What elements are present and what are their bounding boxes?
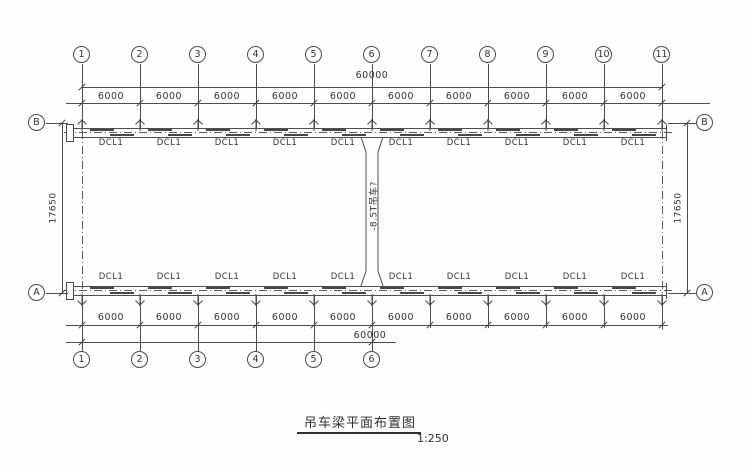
rail-dash [226,134,250,136]
column-support-icon [192,117,204,131]
rail-dash [612,129,636,131]
rail-dash [90,287,114,289]
row-connector [668,123,696,124]
dim-label-bay-bottom: 6000 [98,313,124,323]
beam-segment-label: DCL1 [99,139,124,148]
rail-dash [458,134,482,136]
grid-bubble-top: 1 [73,46,90,63]
row-bubble-a-right: A [696,284,713,301]
rail-dash [284,134,308,136]
rail-dash [554,129,578,131]
rail-dash [554,287,578,289]
rail-dash [496,129,520,131]
beam-segment-label: DCL1 [621,273,646,282]
rail-dash [110,134,134,136]
column-support-icon [598,117,610,131]
beam-segment-label: DCL1 [563,273,588,282]
grid-bubble-bottom: 4 [247,351,264,368]
beam-segment-label: DCL1 [215,139,240,148]
grid-bubble-top: 3 [189,46,206,63]
grid-bubble-top: 8 [479,46,496,63]
dim-line-height-left [62,123,63,293]
dim-label-bay-bottom: 6000 [504,313,530,323]
column-support-icon [308,117,320,131]
rail-dash [168,134,192,136]
dim-label-bay-bottom: 6000 [272,313,298,323]
grid-bubble-bottom: 2 [131,351,148,368]
dim-line-bays-bottom [66,325,668,326]
beam-segment-label: DCL1 [331,273,356,282]
beam-end-block [66,282,74,300]
beam-segment-label: DCL1 [389,139,414,148]
rail-dash [438,129,462,131]
beam-segment-label: DCL1 [505,273,530,282]
dim-label-bay-top: 6000 [562,92,588,102]
row-bubble-b-left: B [28,114,45,131]
beam-segment-label: DCL1 [215,273,240,282]
beam-segment-label: DCL1 [563,139,588,148]
rail-dash [574,292,598,294]
dim-line-total-bottom [66,342,396,343]
beam-segment-label: DCL1 [331,139,356,148]
column-support-icon [656,117,668,131]
dim-label-bay-top: 6000 [156,92,182,102]
drawing-canvas: 1234567891011600006000600060006000600060… [0,0,750,469]
column-support-icon [250,117,262,131]
dim-label-bay-top: 6000 [504,92,530,102]
rail-dash [574,134,598,136]
rail-dash [110,292,134,294]
dim-label-bay-bottom: 6000 [620,313,646,323]
grid-bubble-top: 5 [305,46,322,63]
rail-dash [612,287,636,289]
dim-label-bay-top: 6000 [388,92,414,102]
rail-dash [322,129,346,131]
center-column-note: -8.5T吊车? [371,181,380,231]
rail-dash [632,292,656,294]
beam-segment-label: DCL1 [447,273,472,282]
dim-label-bay-top: 6000 [272,92,298,102]
column-support-icon [134,117,146,131]
rail-dash [400,134,424,136]
dim-label-bay-top: 6000 [98,92,124,102]
rail-dash [264,287,288,289]
beam-segment-label: DCL1 [389,273,414,282]
grid-bubble-bottom: 6 [363,351,380,368]
rail-dash [264,129,288,131]
row-connector [46,123,68,124]
row-connector [46,293,68,294]
dim-label-bay-bottom: 6000 [562,313,588,323]
beam-segment-label: DCL1 [505,139,530,148]
column-support-icon [540,117,552,131]
row-bubble-a-left: A [28,284,45,301]
dim-label-bay-bottom: 6000 [330,313,356,323]
title-underline [297,432,421,434]
grid-bubble-top: 4 [247,46,264,63]
grid-bubble-top: 2 [131,46,148,63]
dim-label-height-right: 17650 [675,192,684,223]
row-bubble-b-right: B [696,114,713,131]
rail-dash [458,292,482,294]
rail-dash [438,287,462,289]
rail-dash [496,287,520,289]
column-support-icon [482,117,494,131]
beam-segment-label: DCL1 [157,273,182,282]
drawing-scale: 1:250 [417,433,449,444]
grid-bubble-top: 11 [653,46,670,63]
dim-label-total-top: 60000 [356,71,389,81]
rail-dash [148,129,172,131]
rail-dash [342,292,366,294]
dim-label-bay-top: 6000 [214,92,240,102]
row-connector [668,293,696,294]
grid-bubble-top: 9 [537,46,554,63]
rail-dash [400,292,424,294]
grid-bubble-bottom: 5 [305,351,322,368]
beam-segment-label: DCL1 [157,139,182,148]
beam-segment-label: DCL1 [621,139,646,148]
column-support-icon [76,117,88,131]
dim-label-bay-top: 6000 [446,92,472,102]
rail-dash [148,287,172,289]
dim-line-bays-top [66,103,710,104]
column-support-icon [366,117,378,131]
rail-dash [168,292,192,294]
beam-segment-label: DCL1 [99,273,124,282]
rail-dash [226,292,250,294]
dim-label-bay-top: 6000 [620,92,646,102]
dim-line-total-top [82,87,662,88]
rail-dash [90,129,114,131]
rail-dash [284,292,308,294]
grid-bubble-top: 7 [421,46,438,63]
rail-dash [206,129,230,131]
beam-segment-label: DCL1 [447,139,472,148]
dim-label-bay-bottom: 6000 [214,313,240,323]
grid-bubble-top: 6 [363,46,380,63]
rail-dash [632,134,656,136]
beam-segment-label: DCL1 [273,139,298,148]
beam-end-block [66,124,74,142]
dim-label-bay-top: 6000 [330,92,356,102]
dim-label-bay-bottom: 6000 [388,313,414,323]
rail-dash [322,287,346,289]
grid-bubble-top: 10 [595,46,612,63]
column-support-icon [424,117,436,131]
rail-dash [206,287,230,289]
dim-label-bay-bottom: 6000 [156,313,182,323]
dim-line-height-right [687,123,688,293]
beam-segment-label: DCL1 [273,273,298,282]
dim-label-bay-bottom: 6000 [446,313,472,323]
drawing-title: 吊车梁平面布置图 [296,416,424,432]
grid-bubble-bottom: 3 [189,351,206,368]
grid-bubble-bottom: 1 [73,351,90,368]
rail-dash [516,292,540,294]
rail-dash [516,134,540,136]
dim-label-height-left: 17650 [50,192,59,223]
dim-label-total-bottom: 60000 [354,331,387,341]
